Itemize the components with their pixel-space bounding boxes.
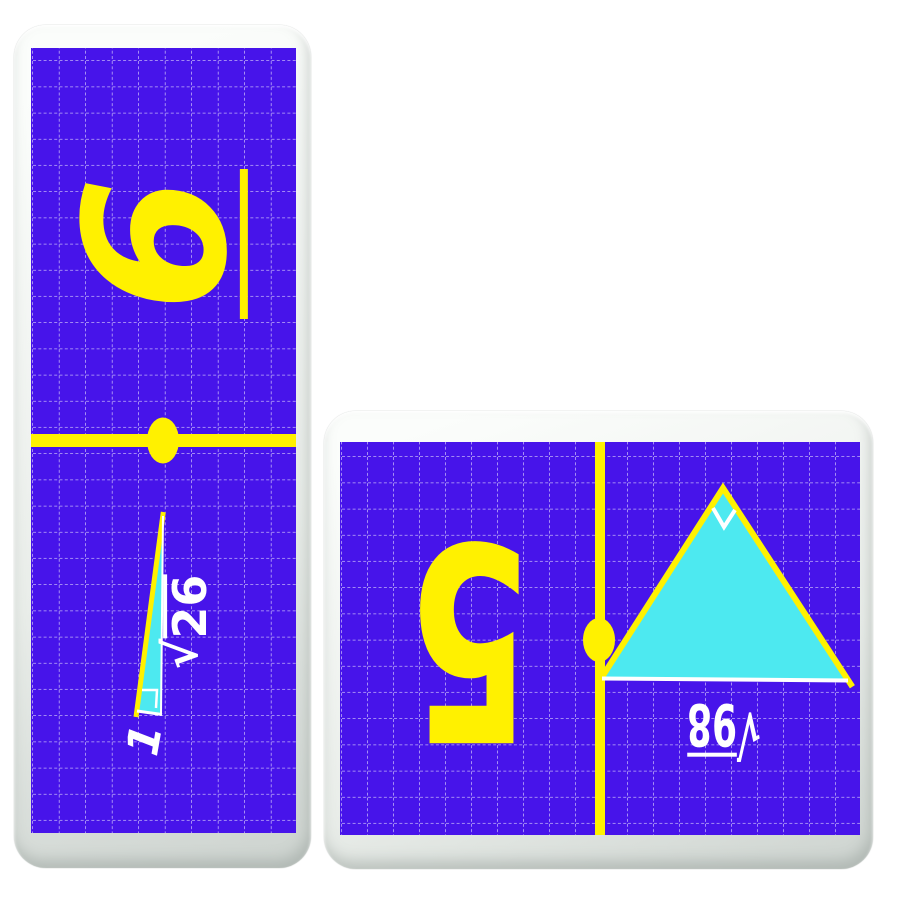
- divider-dot: [583, 618, 615, 662]
- answer-number-five: 5: [408, 536, 533, 740]
- domino-card-horizontal[interactable]: 5 √ 98: [324, 411, 873, 869]
- hypotenuse-label-sqrt26: √ 26: [163, 575, 209, 670]
- radicand-26: 26: [163, 575, 209, 639]
- grid-board-left: 6 √ 26 1: [31, 48, 296, 833]
- hypotenuse-label-sqrt98: √ 98: [687, 701, 761, 756]
- radical-sign: √: [163, 639, 200, 670]
- domino-card-vertical[interactable]: 6 √ 26 1: [14, 25, 311, 868]
- answer-number-six: 6: [84, 169, 248, 319]
- number-underline-bar: [240, 169, 248, 319]
- triangle-base-edge: [602, 679, 848, 681]
- number-five-glyph: 5: [408, 536, 533, 740]
- number-six-glyph: 6: [84, 176, 230, 312]
- radicand-98: 98: [687, 701, 737, 756]
- grid-board-right: 5 √ 98: [340, 442, 860, 835]
- board-graphics-left: [31, 48, 296, 833]
- radical-sign: √: [737, 710, 761, 756]
- divider-dot: [147, 418, 179, 464]
- math-domino-scene: 6 √ 26 1: [0, 0, 900, 900]
